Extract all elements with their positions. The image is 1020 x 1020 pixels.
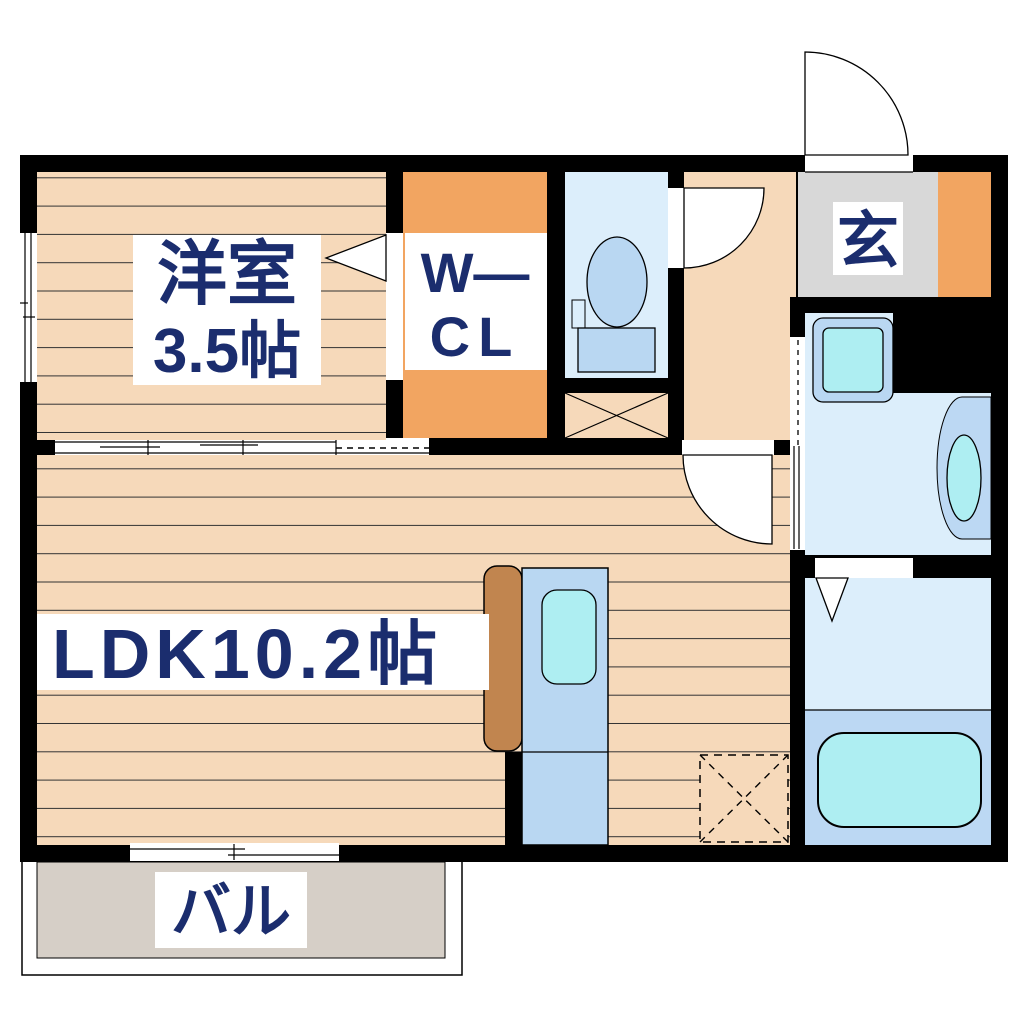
wall-right	[991, 155, 1008, 862]
wash-basin-icon	[947, 435, 981, 521]
western-window	[20, 233, 37, 382]
wall-bathroom-left	[790, 550, 805, 845]
wcl-opening	[386, 233, 403, 380]
toilet-door-gap	[668, 188, 684, 268]
bathroom-door-gap	[815, 558, 913, 578]
wcl-label-line1: W—	[421, 241, 530, 304]
washing-machine-drum-icon	[823, 328, 883, 392]
toilet-handle-icon	[572, 300, 585, 328]
kitchen-sink-icon	[542, 590, 596, 684]
ldk-label: LDK10.2帖	[52, 615, 442, 693]
bathtub-icon	[818, 733, 981, 827]
entrance-step-line	[796, 172, 798, 297]
floor-plan-page: 洋室 3.5帖 W— CL 玄 LDK10.2帖 バル	[0, 0, 1020, 1020]
wcl-label-line2: CL	[430, 305, 521, 368]
wall-ldk-top-right-stub	[774, 440, 790, 455]
western-room-label-line1: 洋室	[157, 235, 297, 313]
wall-washroom-left-upper	[790, 313, 805, 337]
wall-toilet-bottom	[565, 378, 668, 393]
wall-wcl-toilet	[547, 172, 565, 455]
wall-block-right	[893, 297, 1008, 393]
kitchen-counter-icon	[484, 566, 522, 751]
balcony-label: バル	[171, 878, 291, 945]
wall-ldk-top-left-stub	[37, 440, 55, 455]
wall-ldk-top-center	[429, 438, 682, 455]
ldk-door-gap	[682, 440, 774, 455]
floor-plan-svg: 洋室 3.5帖 W— CL 玄 LDK10.2帖 バル	[0, 0, 1020, 1020]
entrance-label: 玄	[837, 207, 899, 276]
western-room-label-line2: 3.5帖	[153, 317, 301, 386]
entrance-door-gap	[805, 155, 913, 172]
toilet-tank-icon	[578, 328, 655, 372]
toilet-bowl-icon	[587, 237, 647, 327]
shoe-cabinet	[938, 172, 991, 297]
wall-kitchen-stub	[505, 752, 522, 845]
